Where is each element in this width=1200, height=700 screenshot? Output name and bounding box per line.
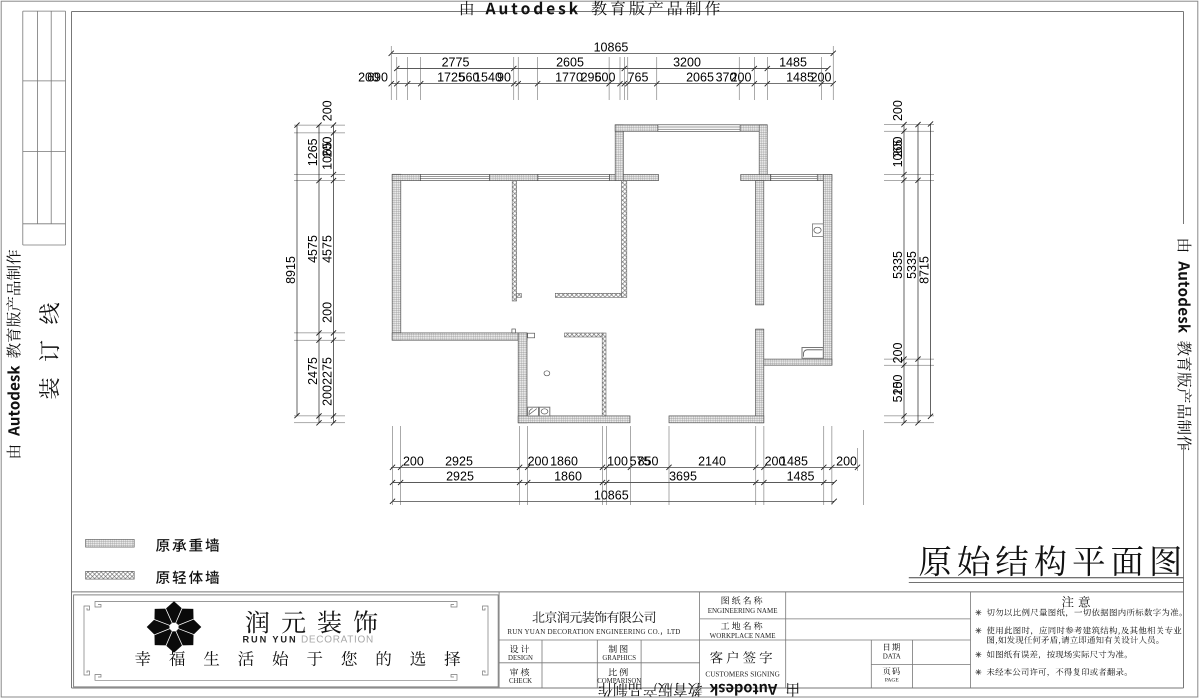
svg-text:PAGE: PAGE [885,678,899,684]
svg-text:GRAPHICS: GRAPHICS [602,655,636,662]
svg-text:1485: 1485 [780,454,808,468]
svg-text:2605: 2605 [556,56,584,70]
svg-text:200: 200 [891,343,905,364]
svg-text:200: 200 [891,375,905,396]
svg-text:1770: 1770 [555,71,583,85]
svg-text:ENGINEERING NAME: ENGINEERING NAME [708,607,778,615]
svg-text:850: 850 [638,454,659,468]
svg-text:DECORATION: DECORATION [301,634,374,645]
svg-text:2065: 2065 [686,71,714,85]
svg-text:3200: 3200 [673,56,701,70]
svg-text:1860: 1860 [554,470,582,484]
svg-text:1265: 1265 [306,138,320,166]
svg-text:600: 600 [595,71,616,85]
svg-text:2140: 2140 [698,454,726,468]
svg-text:4575: 4575 [321,235,335,263]
svg-text:2475: 2475 [306,357,320,385]
svg-text:8715: 8715 [918,256,932,284]
svg-text:4575: 4575 [306,235,320,263]
svg-text:1485: 1485 [779,56,807,70]
svg-text:1860: 1860 [550,454,578,468]
svg-text:10865: 10865 [594,40,629,54]
svg-text:DESIGN: DESIGN [508,655,533,662]
svg-text:8915: 8915 [284,256,298,284]
svg-text:200: 200 [811,71,832,85]
svg-text:DATA: DATA [883,653,901,661]
svg-text:200: 200 [891,137,905,158]
svg-text:CUSTOMERS SIGNING: CUSTOMERS SIGNING [705,671,779,679]
svg-text:2925: 2925 [446,470,474,484]
svg-text:2775: 2775 [442,56,470,70]
svg-text:CHECK: CHECK [509,678,532,685]
svg-text:2925: 2925 [445,454,473,468]
svg-text:200: 200 [528,454,549,468]
svg-text:5335: 5335 [891,251,905,279]
svg-text:COMPARISON: COMPARISON [597,678,641,685]
svg-text:200: 200 [321,302,335,323]
svg-text:100: 100 [607,454,628,468]
svg-text:200: 200 [321,100,335,121]
svg-text:200: 200 [321,385,335,406]
svg-text:RUN YUAN DECORATION ENGINEERIN: RUN YUAN DECORATION ENGINEERING CO.，LTD [507,628,680,636]
svg-text:200: 200 [731,71,752,85]
svg-text:690: 690 [367,71,388,85]
svg-text:1485: 1485 [787,470,815,484]
svg-text:200: 200 [403,454,424,468]
svg-text:200: 200 [836,454,857,468]
svg-text:200: 200 [891,100,905,121]
svg-text:WORKPLACE NAME: WORKPLACE NAME [710,632,776,640]
svg-text:200: 200 [321,137,335,158]
svg-text:3695: 3695 [669,470,697,484]
svg-text:90: 90 [497,71,511,85]
svg-text:765: 765 [628,71,649,85]
svg-text:RUN YUN: RUN YUN [243,634,298,644]
svg-text:2275: 2275 [321,357,335,385]
svg-text:10865: 10865 [594,488,629,502]
